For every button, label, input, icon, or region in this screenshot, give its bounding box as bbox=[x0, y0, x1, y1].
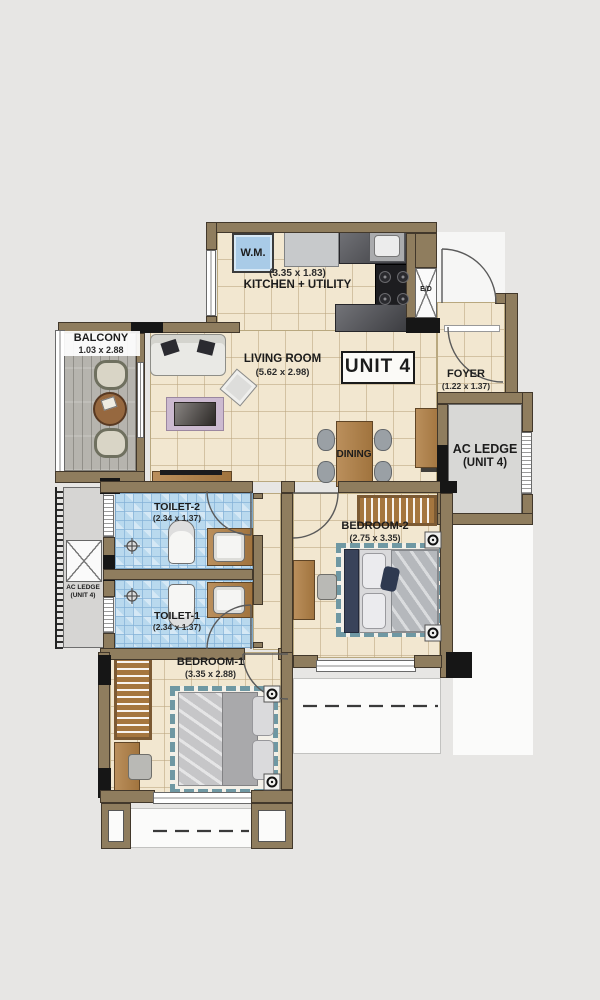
ac-ledge-left-duct bbox=[66, 540, 102, 582]
balcony-chair-top bbox=[94, 360, 128, 390]
kitchen-name: KITCHEN + UTILITY bbox=[210, 279, 385, 293]
ac-ledge-right-sub: (UNIT 4) bbox=[448, 457, 522, 471]
bedroom2-top-wall-b bbox=[338, 481, 453, 493]
tv-screen bbox=[160, 470, 222, 475]
deck-planter-right-inner bbox=[258, 810, 286, 842]
toilet2-wc bbox=[168, 520, 195, 564]
washing-machine-label: W.M. bbox=[240, 247, 265, 260]
bedroom2-bottom-wall-b bbox=[414, 655, 442, 668]
dining-chair bbox=[374, 429, 392, 451]
ac-ledge-left-louver-b bbox=[103, 597, 114, 633]
bedroom1-right-wall bbox=[281, 652, 293, 790]
ac-ledge-left-louver-a bbox=[103, 495, 114, 537]
sink-basin bbox=[374, 235, 400, 257]
kitchen-dims: (3.35 x 1.83) bbox=[210, 268, 385, 279]
deck-below-bedroom2 bbox=[293, 678, 441, 754]
balcony-dims: 1.03 x 2.88 bbox=[62, 345, 140, 355]
kitchen-counter-corner bbox=[335, 304, 407, 332]
column bbox=[406, 318, 440, 333]
living-room-dims: (5.62 x 2.98) bbox=[225, 367, 340, 378]
dining-chair bbox=[374, 461, 392, 483]
toilets-right-stub-bottom bbox=[253, 642, 263, 648]
bedroom2-bottom-wall-a bbox=[293, 655, 318, 668]
living-room-label: LIVING ROOM (5.62 x 2.98) bbox=[225, 353, 340, 378]
bedroom1-label: BEDROOM-1 (3.35 x 2.88) bbox=[158, 656, 263, 679]
sofa bbox=[150, 334, 226, 376]
column bbox=[446, 652, 472, 678]
column bbox=[98, 655, 111, 685]
bedroom1-name: BEDROOM-1 bbox=[158, 656, 263, 669]
exterior-entry-area bbox=[437, 232, 505, 302]
toilet1-label: TOILET-1 (2.34 x 1.37) bbox=[127, 610, 227, 632]
ac-ledge-right-name: AC LEDGE bbox=[448, 442, 522, 457]
bedroom1-window bbox=[153, 792, 253, 804]
ac-ledge-left-name: AC LEDGE bbox=[58, 584, 108, 592]
toilets-right-stub-top bbox=[253, 493, 263, 499]
bedroom1-pillow bbox=[252, 696, 274, 736]
balcony-chair-bottom bbox=[94, 428, 128, 458]
ac-ledge-right-label: AC LEDGE (UNIT 4) bbox=[448, 442, 522, 470]
coffee-table bbox=[174, 402, 216, 426]
toilet2-label: TOILET-2 (2.34 x 1.37) bbox=[127, 501, 227, 523]
balcony-slider bbox=[137, 362, 144, 438]
toilet2-name: TOILET-2 bbox=[127, 501, 227, 513]
ac-ledge-right-louver bbox=[521, 432, 532, 494]
dining-chair bbox=[317, 429, 335, 451]
entry-door-leaf bbox=[444, 325, 500, 332]
toilet1-name: TOILET-1 bbox=[127, 610, 227, 622]
bedroom2-pillow bbox=[362, 593, 386, 629]
unit-label-box: UNIT 4 bbox=[341, 351, 415, 384]
bedroom2-name: BEDROOM-2 bbox=[325, 520, 425, 533]
foyer-name: FOYER bbox=[430, 368, 502, 381]
toilets-mid-wall bbox=[103, 569, 253, 580]
toilet2-sink bbox=[213, 532, 245, 562]
bedroom1-chair bbox=[128, 754, 152, 780]
bedroom1-dims: (3.35 x 2.88) bbox=[158, 669, 263, 679]
bedroom2-chair bbox=[317, 574, 337, 600]
balcony-name: BALCONY bbox=[62, 332, 140, 345]
kitchen-sink bbox=[369, 229, 405, 262]
dining-chair bbox=[317, 461, 335, 483]
entry-right-wall bbox=[505, 293, 518, 395]
bedroom2-desk bbox=[293, 560, 315, 620]
kitchen-top-wall bbox=[206, 222, 437, 233]
bedroom2-window bbox=[316, 660, 416, 672]
living-room-name: LIVING ROOM bbox=[225, 353, 340, 367]
ed-shaft-top-wall bbox=[415, 233, 437, 268]
bedroom1-bottom-wall-a bbox=[100, 790, 155, 803]
bedroom1-pillow bbox=[252, 740, 274, 780]
bedroom1-wardrobe bbox=[114, 654, 152, 740]
balcony-label: BALCONY 1.03 x 2.88 bbox=[62, 331, 140, 356]
kitchen-left-wall-upper bbox=[206, 222, 217, 250]
bedroom2-left-wall bbox=[281, 493, 293, 662]
ac-ledge-left-label: AC LEDGE (UNIT 4) bbox=[58, 584, 108, 599]
ac-ledge-left-railing bbox=[55, 487, 63, 649]
unit-label: UNIT 4 bbox=[345, 356, 411, 378]
ac-ledge-left-sub: (UNIT 4) bbox=[58, 592, 108, 600]
bedroom2-top-wall-a bbox=[281, 481, 295, 493]
ac-ledge-right-wall-a bbox=[522, 392, 533, 432]
floor-plan-canvas: W.M. bbox=[0, 0, 600, 1000]
toilet1-dims: (2.34 x 1.37) bbox=[127, 622, 227, 632]
exterior-right-area bbox=[453, 525, 533, 755]
washing-machine: W.M. bbox=[232, 233, 274, 273]
bedroom2-bed-headboard bbox=[344, 549, 359, 633]
column bbox=[440, 481, 457, 493]
foyer-label: FOYER (1.22 x 1.37) bbox=[430, 368, 502, 391]
bedroom1-bottom-wall-b bbox=[251, 790, 293, 803]
ed-label: E/D bbox=[415, 286, 437, 294]
bedroom1-bed-blanket bbox=[178, 692, 226, 786]
toilet2-top-wall bbox=[100, 481, 253, 493]
kitchen-label: (3.35 x 1.83) KITCHEN + UTILITY bbox=[210, 268, 385, 293]
dining-label: DINING bbox=[329, 449, 379, 461]
toilet2-dims: (2.34 x 1.37) bbox=[127, 513, 227, 523]
foyer-dims: (1.22 x 1.37) bbox=[430, 381, 502, 391]
bedroom2-bed-blanket bbox=[391, 550, 438, 632]
bedroom2-right-wall bbox=[440, 493, 453, 678]
deck-planter-left-inner bbox=[108, 810, 124, 842]
bedroom2-dims: (2.75 x 3.35) bbox=[325, 533, 425, 543]
ac-ledge-right-top-wall bbox=[437, 392, 533, 404]
toilets-right-wall bbox=[253, 535, 263, 605]
bedroom2-label: BEDROOM-2 (2.75 x 3.35) bbox=[325, 520, 425, 543]
refrigerator bbox=[284, 227, 339, 267]
